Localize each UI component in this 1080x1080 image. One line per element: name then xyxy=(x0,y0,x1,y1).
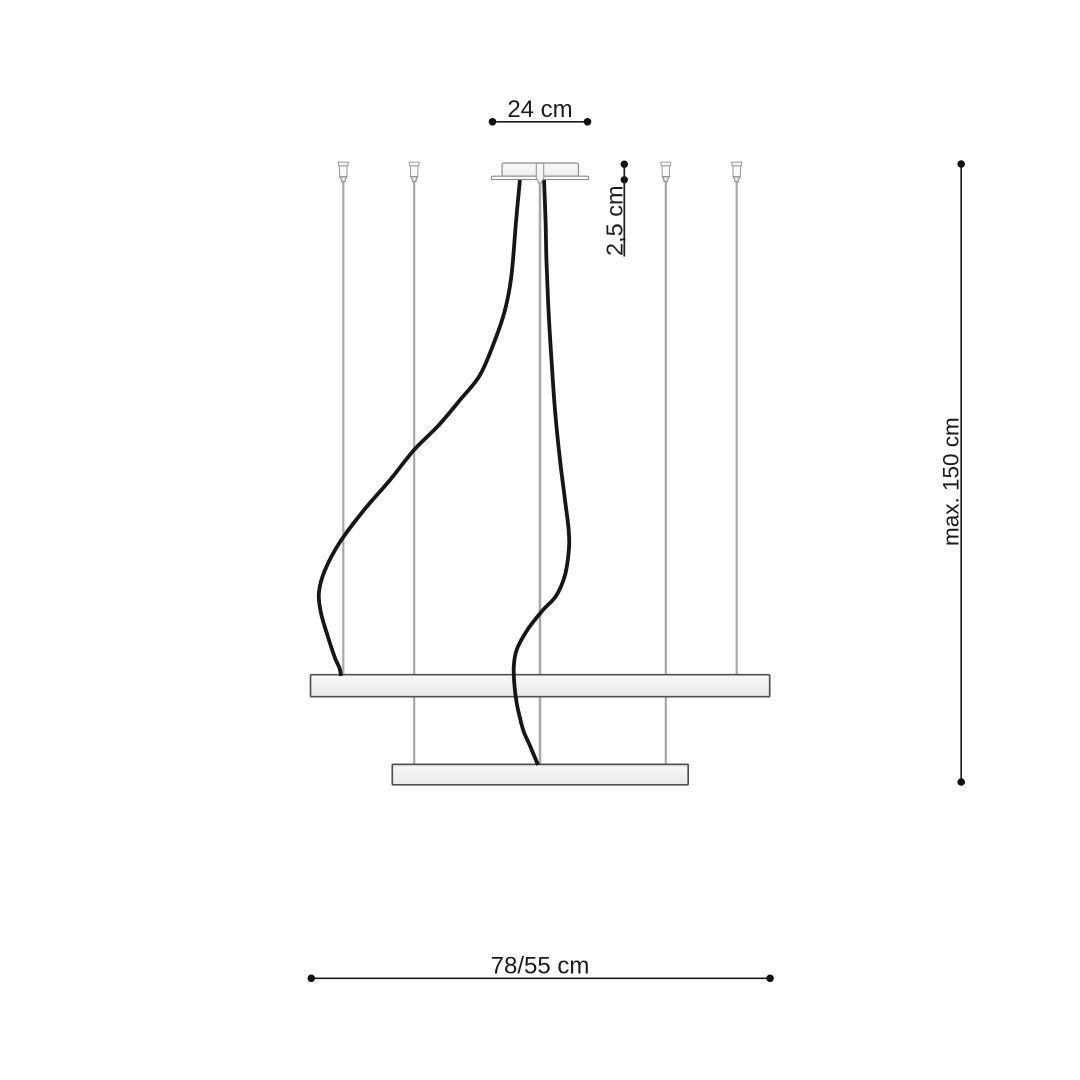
svg-text:78/55 cm: 78/55 cm xyxy=(491,953,590,980)
svg-text:max. 150 cm: max. 150 cm xyxy=(939,417,964,546)
svg-text:24 cm: 24 cm xyxy=(507,96,572,123)
svg-text:2,5 cm: 2,5 cm xyxy=(602,185,628,256)
